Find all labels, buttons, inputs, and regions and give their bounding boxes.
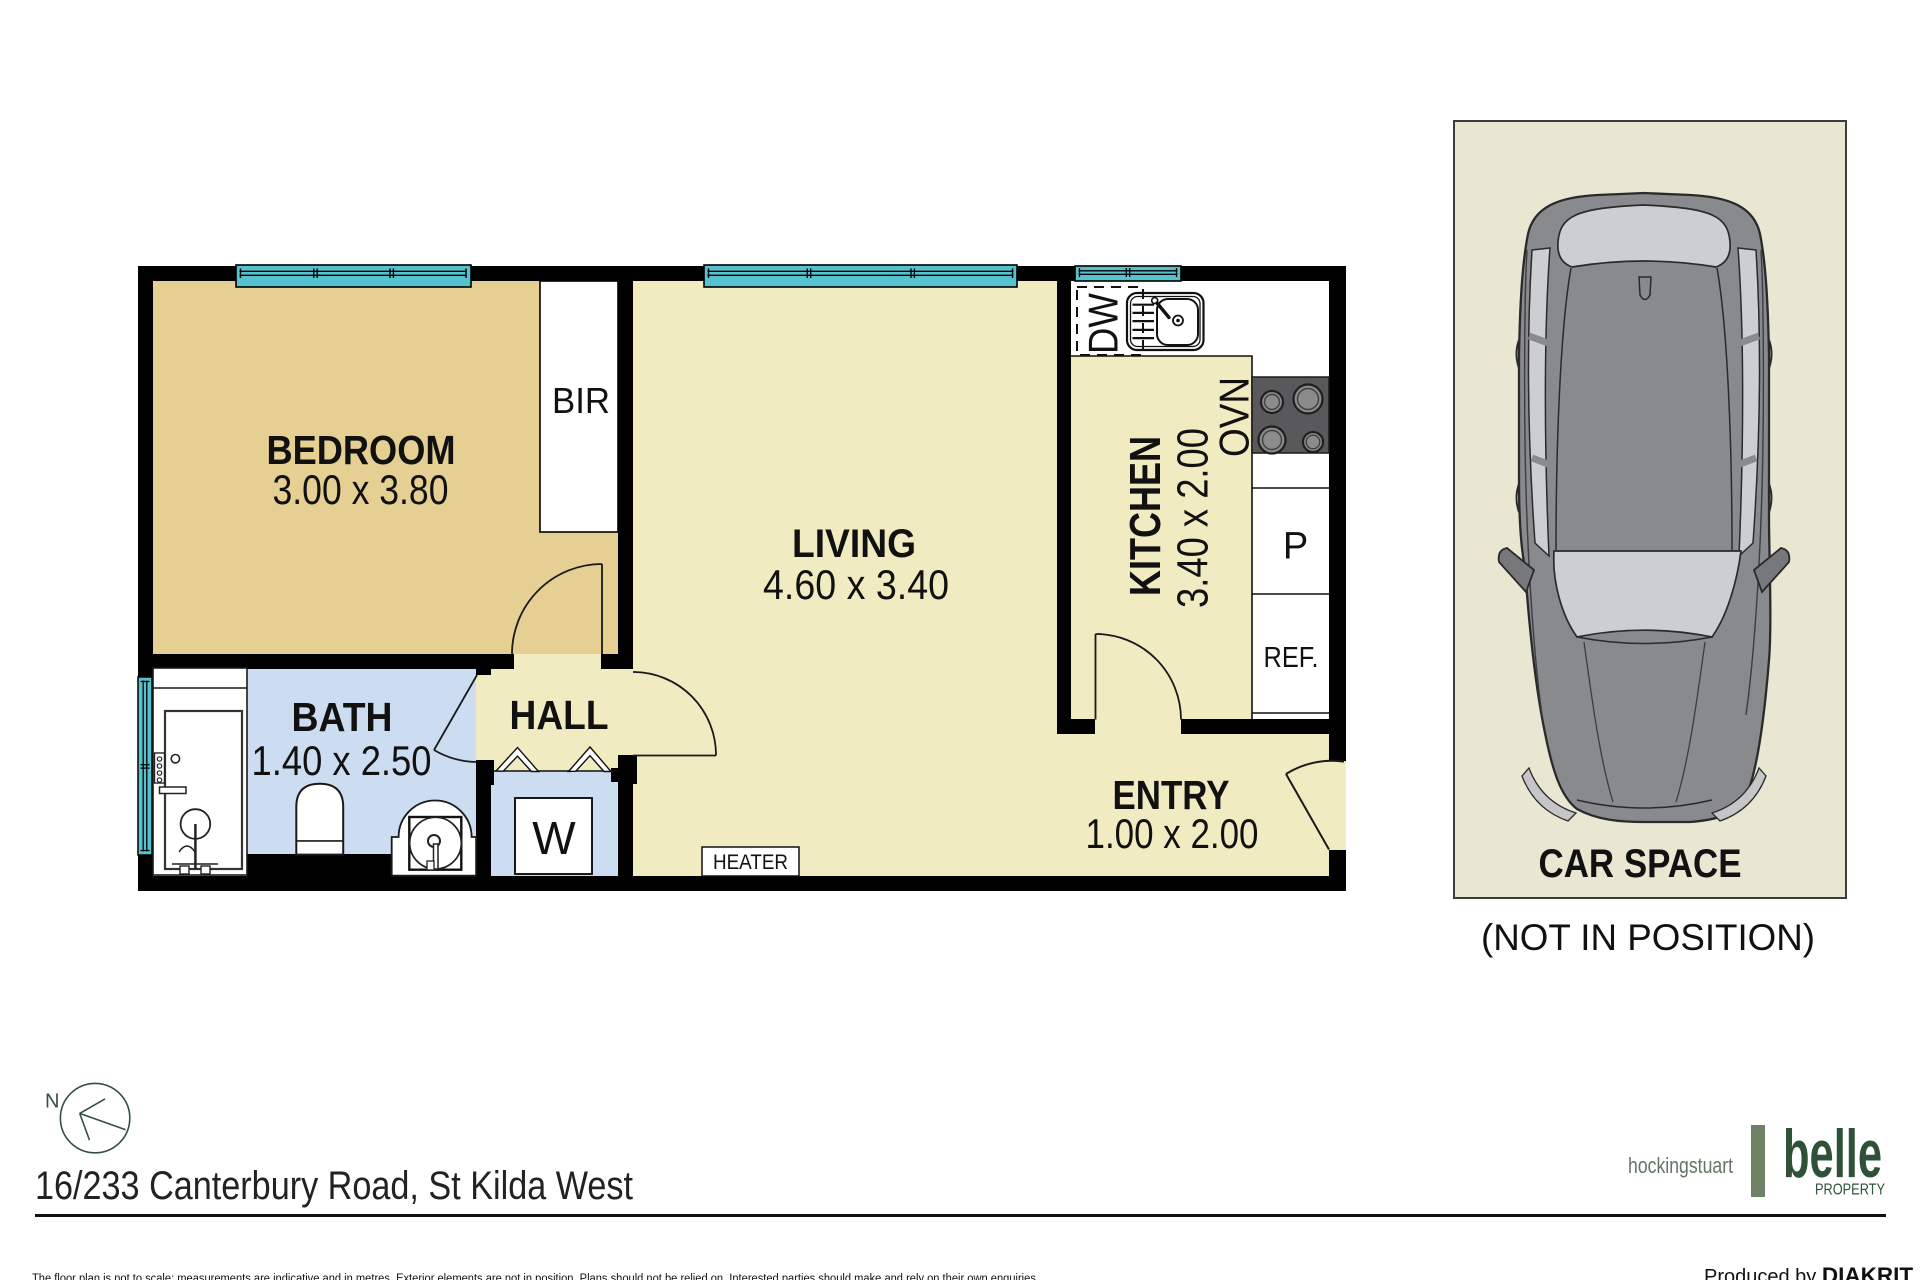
svg-text:1.40 x 2.50: 1.40 x 2.50 — [252, 737, 432, 784]
svg-text:REF.: REF. — [1264, 642, 1319, 674]
svg-text:BATH: BATH — [292, 694, 393, 740]
svg-text:HALL: HALL — [510, 692, 609, 738]
svg-text:The floor plan is not to scale: The floor plan is not to scale; measurem… — [32, 1273, 1039, 1280]
svg-text:3.40 x 2.00: 3.40 x 2.00 — [1169, 428, 1218, 608]
svg-text:W: W — [532, 812, 576, 864]
svg-text:hockingstuart: hockingstuart — [1628, 1153, 1733, 1178]
svg-text:16/233 Canterbury Road, St Kil: 16/233 Canterbury Road, St Kilda West — [35, 1164, 633, 1208]
svg-text:HEATER: HEATER — [713, 851, 788, 874]
svg-text:P: P — [1283, 526, 1308, 568]
svg-text:4.60 x 3.40: 4.60 x 3.40 — [763, 561, 949, 608]
svg-text:OVN: OVN — [1211, 377, 1258, 457]
svg-text:LIVING: LIVING — [792, 522, 916, 566]
svg-text:DW: DW — [1080, 293, 1127, 354]
svg-text:Produced by DIAKRIT: Produced by DIAKRIT — [1704, 1263, 1913, 1280]
svg-text:PROPERTY: PROPERTY — [1815, 1182, 1885, 1199]
svg-text:BIR: BIR — [552, 380, 610, 421]
svg-text:3.00 x 3.80: 3.00 x 3.80 — [273, 466, 449, 513]
svg-text:KITCHEN: KITCHEN — [1121, 436, 1170, 596]
svg-text:N: N — [45, 1091, 59, 1113]
svg-text:1.00 x 2.00: 1.00 x 2.00 — [1086, 810, 1259, 857]
svg-text:CAR SPACE: CAR SPACE — [1539, 842, 1742, 886]
svg-text:(NOT IN POSITION): (NOT IN POSITION) — [1481, 917, 1815, 958]
